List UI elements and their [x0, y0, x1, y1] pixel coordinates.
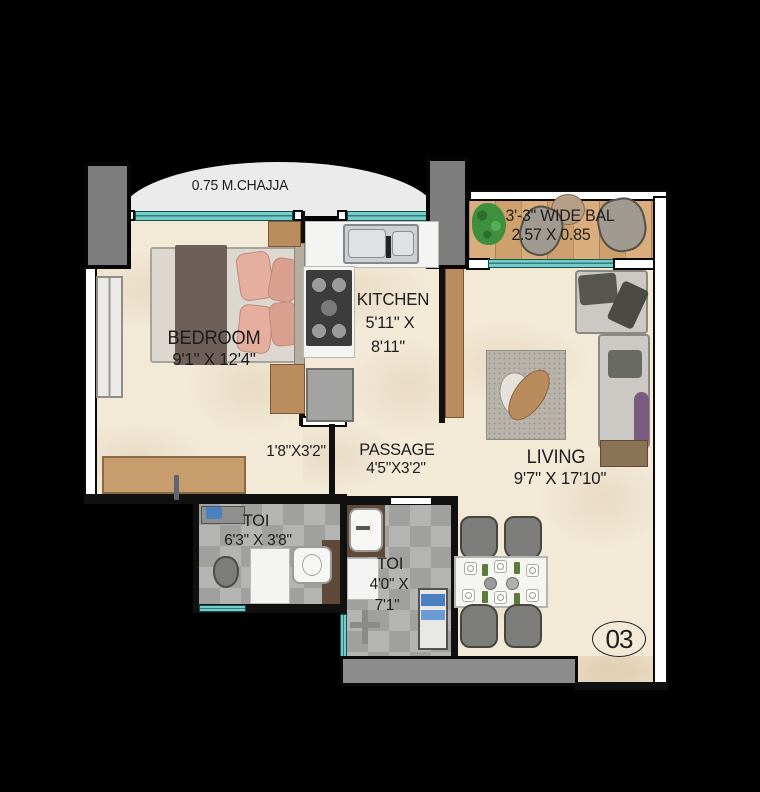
towel: [421, 594, 445, 606]
living-window: [488, 259, 615, 268]
dining-table: [454, 556, 548, 608]
living-floor-step: [578, 656, 655, 682]
sofa-cushion: [578, 272, 618, 305]
bedroom-name: BEDROOM: [168, 329, 261, 348]
toilet-attached-name: TOI: [377, 555, 403, 572]
balcony-name: 3'-3" WIDE BAL: [506, 208, 615, 225]
sink-faucet: [386, 236, 391, 258]
towel: [421, 610, 445, 620]
refrigerator: [306, 368, 354, 422]
kitchen-name: KITCHEN: [357, 291, 429, 309]
toilet-attached-door: [390, 497, 432, 505]
kitchen-window: [347, 211, 427, 221]
washbasin-bowl: [302, 554, 322, 576]
toilet-common-left-wall: [193, 502, 199, 610]
bowl: [506, 577, 519, 590]
chajja-label: 0.75 M.CHAJJA: [192, 179, 289, 194]
plant: [472, 203, 506, 245]
column-top-left: [84, 162, 131, 269]
wall-cap: [293, 210, 303, 221]
toilet-attached-dims-2: 7'1": [375, 598, 400, 614]
dining-chair: [460, 604, 498, 648]
balcony-dims: 2.57 X 0.85: [512, 227, 591, 244]
nook-passage-wall: [329, 424, 335, 496]
shower-head: [206, 507, 222, 519]
bottom-wall-block: [340, 656, 578, 686]
toilet-attached-dims-1: 4'0" X: [370, 577, 409, 593]
wall-cap: [613, 258, 655, 270]
wall-cap: [466, 258, 490, 270]
living-dims: 9'7" X 17'10": [514, 470, 606, 488]
sofa-bolster: [634, 392, 649, 446]
side-table: [600, 440, 648, 467]
wall-cap: [337, 210, 347, 221]
shoe-rack: [102, 456, 246, 494]
kitchen-dims-2: 8'11": [371, 338, 405, 355]
living-bottom-wall: [575, 682, 668, 690]
plate: [494, 560, 507, 573]
plate: [526, 589, 539, 602]
stove: [306, 270, 352, 346]
kitchen-dims-1: 5'11" X: [365, 314, 414, 331]
napkin: [482, 564, 488, 576]
toilet-wc: [213, 556, 239, 588]
sink-basin: [348, 229, 386, 258]
plate: [526, 564, 539, 577]
bowl: [484, 577, 497, 590]
toilet-common-name: TOI: [243, 512, 269, 529]
passage-dims: 4'5"X3'2": [366, 461, 425, 477]
unit-number-badge: 03: [592, 621, 646, 657]
shower-partition: [250, 548, 290, 604]
dining-chair: [504, 516, 542, 560]
bedroom-window: [135, 211, 293, 221]
washbasin: [349, 508, 383, 552]
washbasin-tap: [356, 526, 370, 530]
wardrobe: [96, 276, 123, 398]
kitchen-living-door-panel: [445, 266, 464, 418]
sink-basin: [392, 231, 414, 256]
bedroom-bottom-wall: [84, 494, 347, 504]
floor-plan: 0.75 M.CHAJJA 3'-3" WIDE BAL 2.57 X 0.85…: [0, 0, 760, 792]
dining-chair: [460, 516, 498, 560]
living-name: LIVING: [527, 448, 586, 467]
plate: [464, 562, 477, 575]
nightstand: [268, 221, 301, 247]
nightstand: [270, 364, 305, 414]
toilet-common-dims: 6'3" X 3'8": [224, 533, 292, 549]
napkin: [482, 591, 488, 603]
nook-dims: 1'8"X3'2": [266, 444, 325, 460]
shoe-rack-shoes: [104, 458, 244, 492]
bedroom-dims: 9'1" X 12'4": [172, 351, 255, 369]
right-outer-wall: [653, 196, 668, 690]
napkin: [514, 562, 520, 574]
shower-fitting: [350, 622, 380, 628]
plate: [462, 589, 475, 602]
unit-number: 03: [606, 624, 633, 655]
sofa-cushion: [608, 350, 642, 378]
toilet-attached-window: [340, 614, 347, 658]
dining-chair: [504, 604, 542, 648]
plate: [494, 591, 507, 604]
toilet-common-window: [199, 605, 246, 612]
passage-name: PASSAGE: [359, 441, 434, 458]
